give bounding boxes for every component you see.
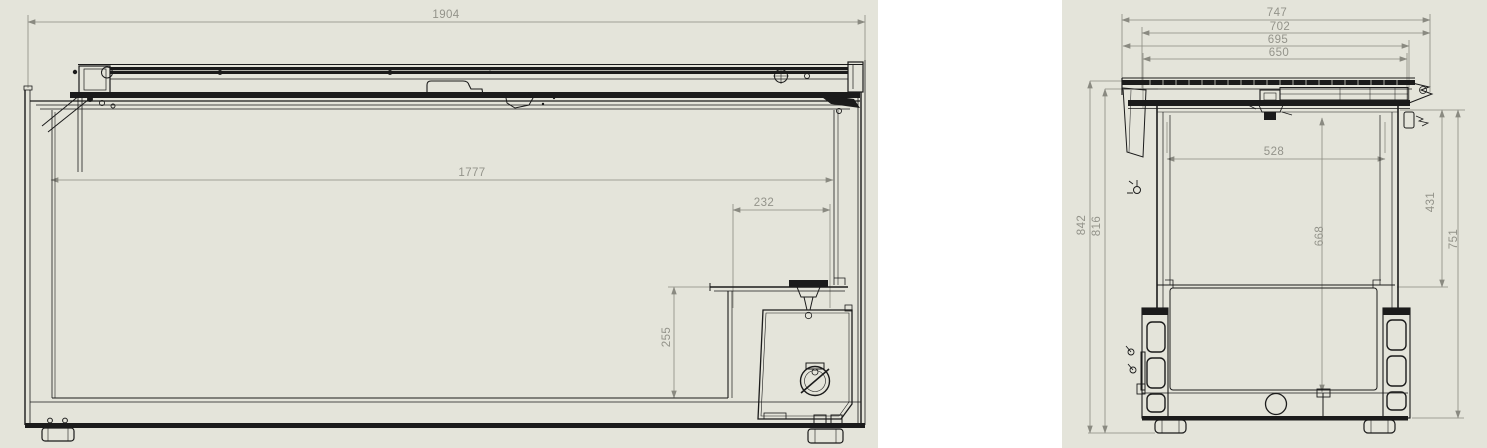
panel-divider: [878, 0, 1062, 448]
lower-liner: [1170, 288, 1377, 390]
side-base: [1126, 308, 1410, 421]
front-linework: [24, 60, 865, 443]
dim-overall-height: 842: [1075, 205, 1089, 245]
front-compressor-compartment: [758, 305, 852, 425]
drawing-sheet: 1904 1777 232 255 747 702 695 650 842 81…: [0, 0, 1487, 448]
front-body: [24, 60, 865, 428]
base-hole: [1266, 394, 1287, 415]
dim-case-height: 816: [1090, 206, 1104, 246]
dim-lid-depth: 695: [1250, 33, 1306, 47]
dim-lid-outer-depth: 702: [1252, 20, 1308, 34]
dim-interior-front-height: 751: [1447, 219, 1461, 259]
front-feet: [42, 418, 843, 443]
dim-overall-depth: 747: [1249, 6, 1305, 20]
side-linework: [1122, 78, 1432, 433]
hinge-clip: [1134, 187, 1141, 194]
back-cover: [1123, 88, 1146, 157]
lock-fitting: [1404, 112, 1414, 128]
dim-upper-interior-height: 431: [1424, 182, 1438, 222]
linework-canvas: [0, 0, 1487, 448]
dim-opening-depth: 528: [1246, 145, 1302, 159]
dim-body-depth: 650: [1251, 46, 1307, 60]
dim-interior-depth: 668: [1313, 216, 1327, 256]
dim-step-width: 232: [736, 196, 792, 210]
hinge-bracket: [1408, 82, 1432, 103]
front-view: [24, 15, 865, 443]
dim-interior-width: 1777: [444, 166, 500, 180]
dim-step-height: 255: [660, 317, 674, 357]
side-view: [1088, 14, 1465, 433]
dim-overall-width: 1904: [418, 8, 474, 22]
front-step: [710, 283, 848, 398]
side-feet: [1155, 420, 1395, 433]
front-left-hinge: [42, 66, 115, 172]
